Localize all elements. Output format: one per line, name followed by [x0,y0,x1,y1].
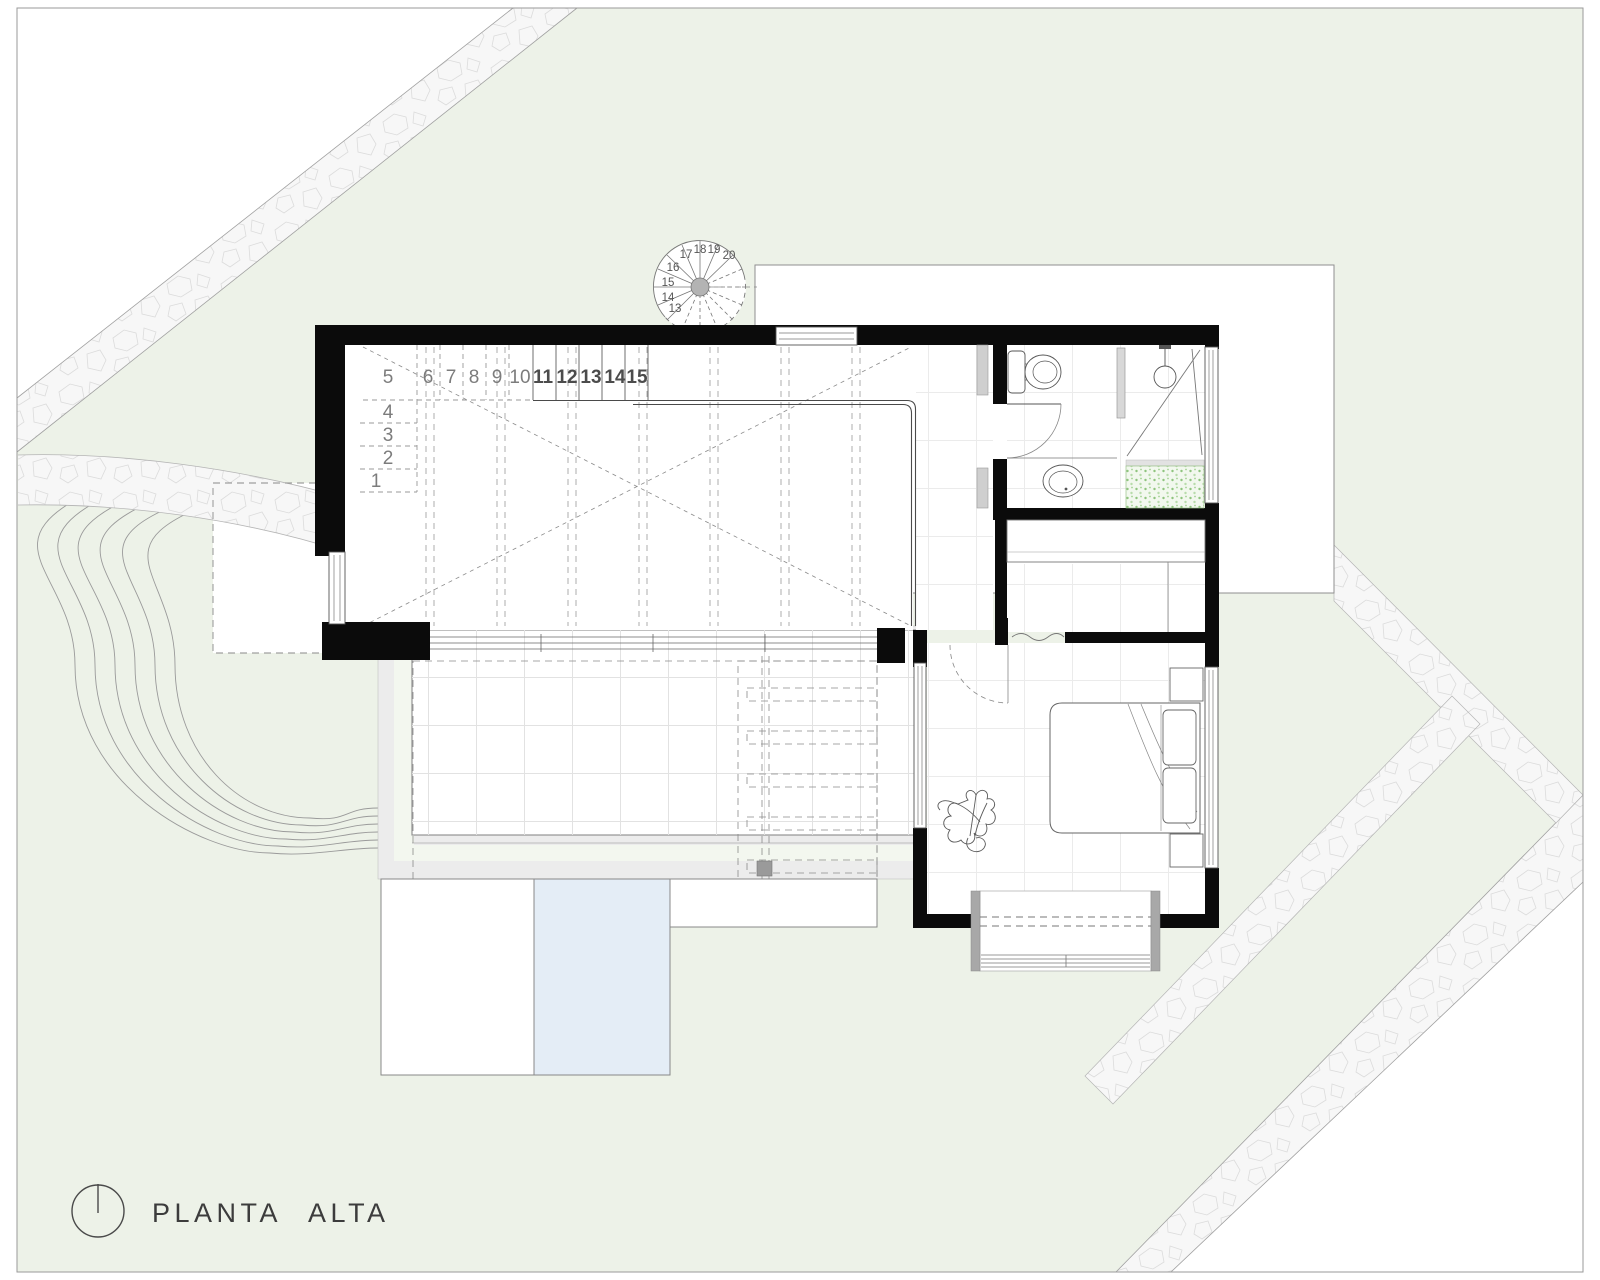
plan-title: PLANTA ALTA [152,1198,390,1228]
deck-below [381,879,534,1075]
sink [1043,465,1083,497]
stair-number: 14 [604,367,626,388]
spiral-number: 19 [708,244,721,256]
stair-number: 3 [383,425,394,446]
spiral-stair-post [691,278,709,296]
spiral-number: 16 [667,262,680,274]
bed [1050,703,1200,833]
spiral-number: 20 [723,250,736,262]
window-bedroom-west [914,663,926,828]
corridor-shelf-lower [977,468,988,508]
window-west [329,552,345,624]
pillow [1163,710,1196,765]
floor-plan-canvas: 13 14 15 16 17 18 19 20 [0,0,1600,1280]
spiral-number: 17 [680,249,693,261]
window-north [776,327,857,345]
nightstand [1170,834,1203,867]
closet-tiles [1007,564,1205,632]
closet-shelf [1007,520,1205,562]
stair-number: 10 [509,367,530,388]
stair-number: 6 [423,367,434,388]
pool-below [534,879,670,1075]
terrace-below [378,626,920,882]
balcony-post [971,891,980,971]
deck-strip-below [670,879,877,927]
stair-number: 12 [556,367,577,388]
stair-number: 1 [371,471,382,492]
bathroom-planter [1126,466,1204,508]
spiral-number: 15 [662,277,675,289]
spiral-number: 13 [669,303,682,315]
stair-number: 11 [533,367,554,388]
stair-number: 7 [446,367,457,388]
stair-number: 4 [383,402,394,423]
stair-number: 13 [580,367,601,388]
pillow [1163,768,1196,823]
pergola-post [757,861,772,876]
shower-partition [1117,348,1125,418]
window-bathroom-east [1205,347,1218,503]
stair-number: 5 [383,367,394,388]
window-bedroom-east [1205,667,1218,868]
balcony [971,891,1160,971]
corridor-shelf-upper [977,345,988,395]
stair-number: 9 [492,367,503,388]
spiral-number: 18 [694,244,707,256]
stair-number: 8 [469,367,480,388]
shower-head-icon [1159,345,1171,349]
spiral-number: 14 [662,292,675,304]
stair-number: 15 [626,367,648,388]
balcony-post [1151,891,1160,971]
nightstand [1170,668,1203,701]
stair-number: 2 [383,448,394,469]
planter-curb [1126,460,1204,466]
floor-plan-sheet: 13 14 15 16 17 18 19 20 [0,0,1600,1280]
sliding-glass-door-south [430,634,877,652]
